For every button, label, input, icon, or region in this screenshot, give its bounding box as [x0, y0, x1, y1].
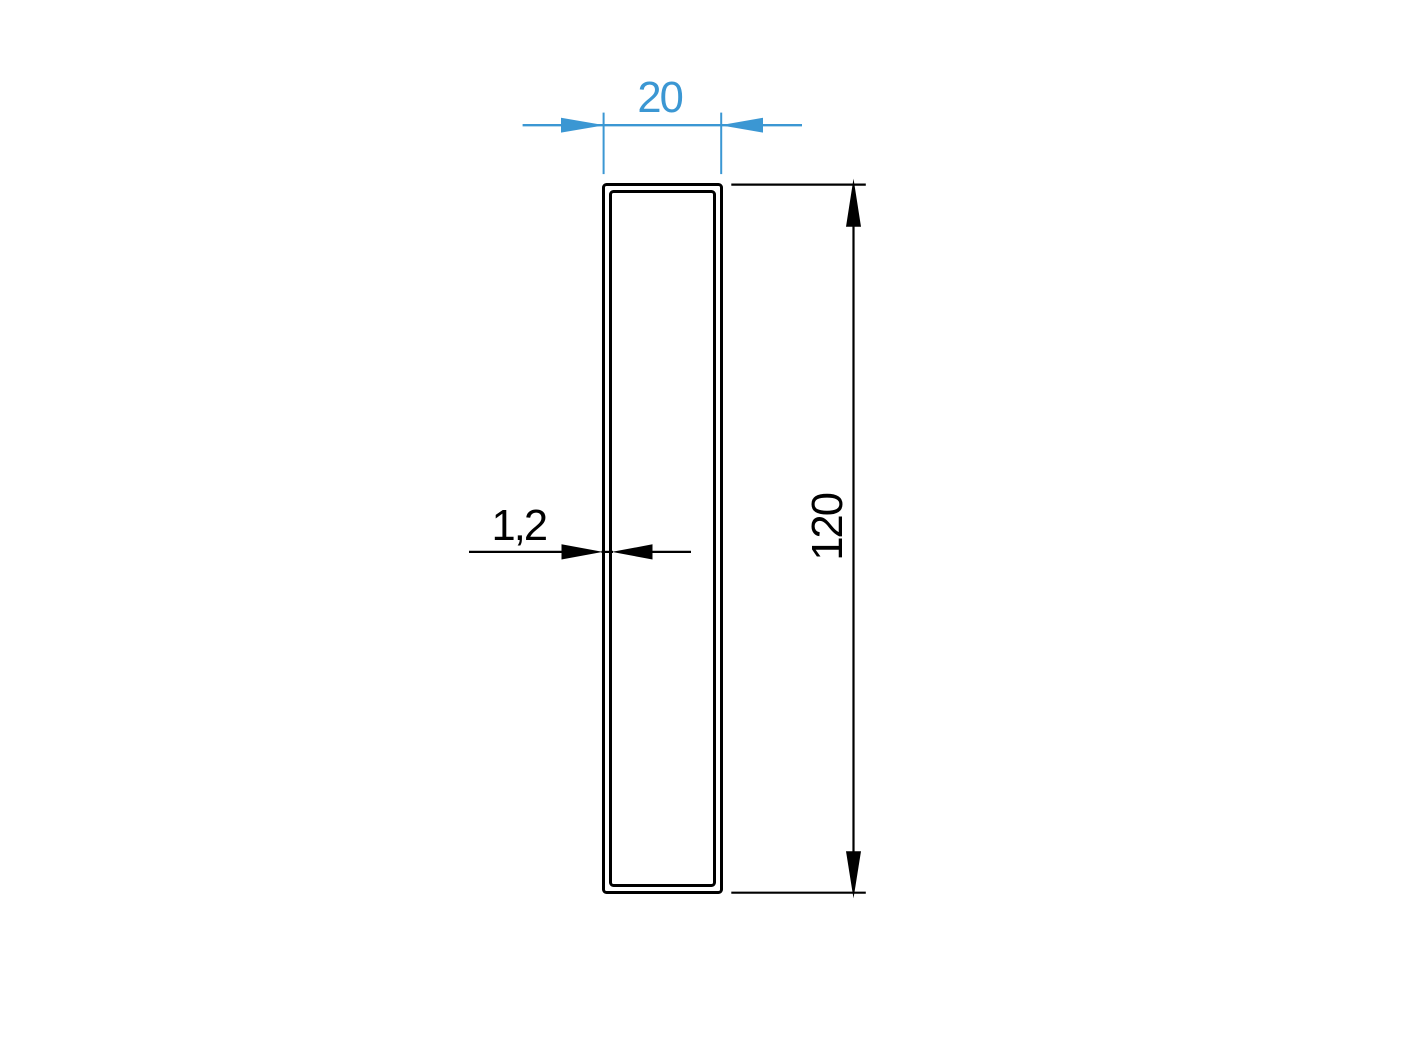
- svg-text:120: 120: [804, 493, 852, 560]
- svg-text:20: 20: [637, 74, 682, 122]
- svg-text:1,2: 1,2: [492, 502, 546, 550]
